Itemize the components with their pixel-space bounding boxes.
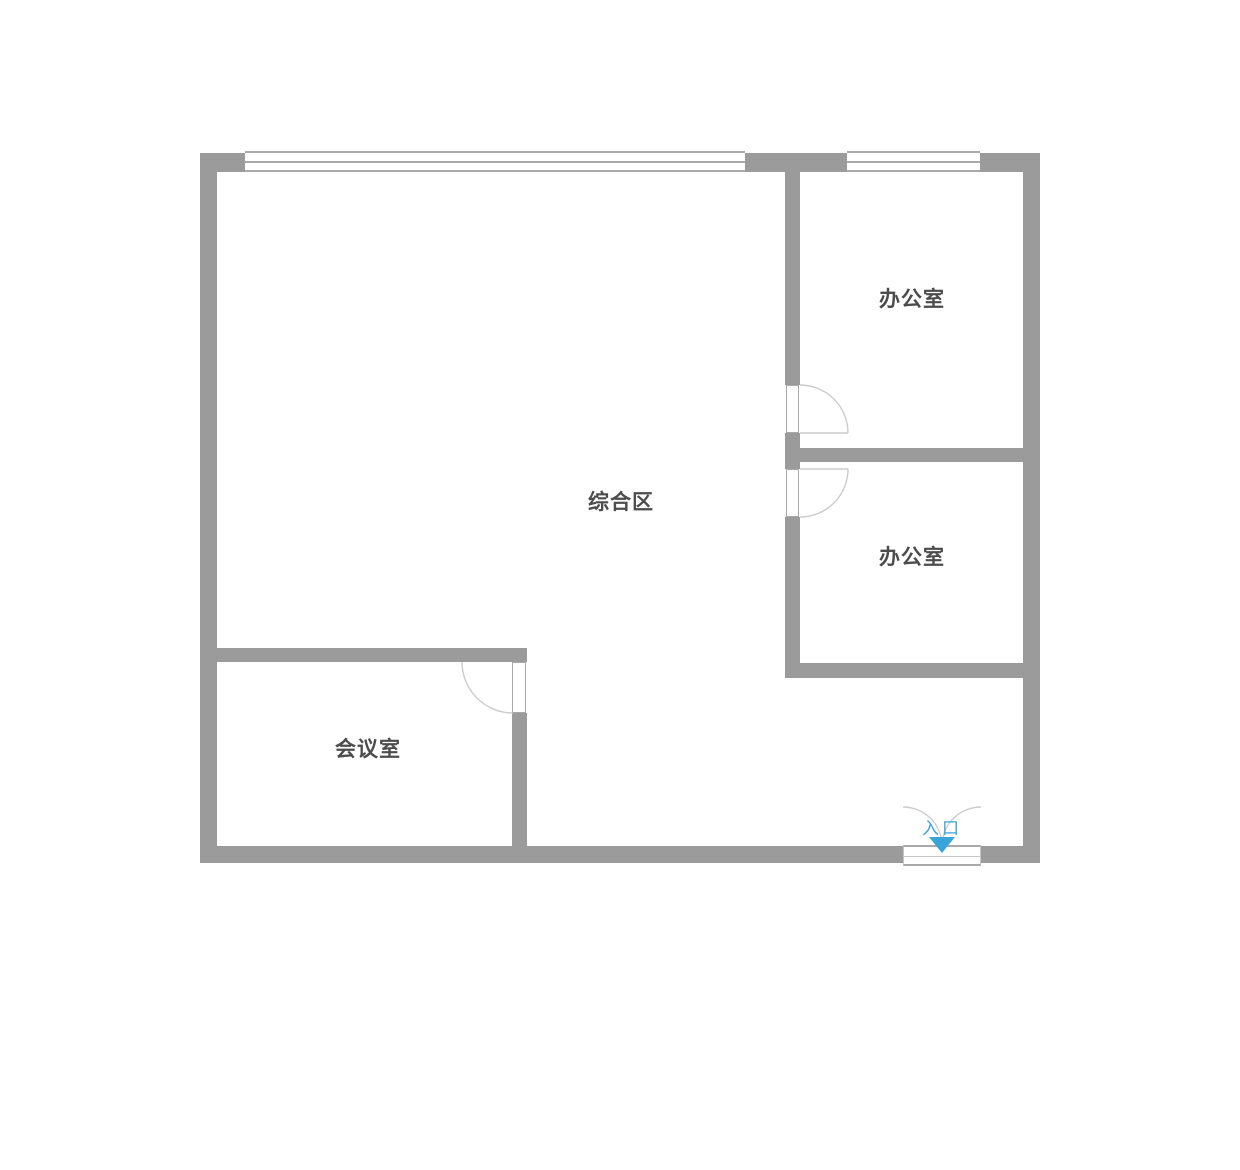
- floorplan-canvas: 入口 综合区 办公室 办公室 会议室: [0, 0, 1240, 1170]
- room-label-office-lower: 办公室: [879, 541, 945, 571]
- door-leaf-office-upper: [786, 385, 799, 433]
- window-mullion: [847, 161, 980, 163]
- window-mullion: [245, 161, 745, 163]
- wall-offices-vertical-middle: [785, 433, 800, 469]
- wall-office-lower-bottom: [785, 663, 1023, 678]
- door-leaf-meeting-room: [512, 662, 526, 713]
- room-label-office-upper: 办公室: [879, 283, 945, 313]
- wall-right: [1023, 153, 1040, 863]
- wall-left: [200, 153, 217, 863]
- wall-top-middle-segment: [745, 153, 847, 172]
- wall-offices-vertical-upper: [785, 172, 800, 385]
- wall-bottom-left-segment: [200, 846, 903, 863]
- room-label-comprehensive-area: 综合区: [588, 486, 654, 516]
- wall-meeting-room-right: [512, 713, 527, 863]
- room-label-meeting-room: 会议室: [335, 733, 401, 763]
- door-leaf-office-lower: [786, 469, 799, 517]
- wall-between-offices: [800, 448, 1023, 462]
- door-arc-meeting-room: [462, 662, 513, 713]
- triangle-down-icon: [929, 837, 955, 853]
- door-arc-office-lower: [800, 469, 848, 517]
- entrance-threshold-line: [904, 856, 980, 857]
- window-top-main: [245, 151, 745, 172]
- door-arcs-layer: [0, 0, 1240, 1170]
- door-arc-office-upper: [800, 385, 848, 433]
- window-top-office: [847, 151, 980, 172]
- wall-meeting-room-top: [200, 648, 527, 662]
- entrance-label: 入口: [922, 814, 962, 839]
- wall-bottom-right-segment: [981, 846, 1040, 863]
- wall-offices-vertical-lower: [785, 517, 800, 678]
